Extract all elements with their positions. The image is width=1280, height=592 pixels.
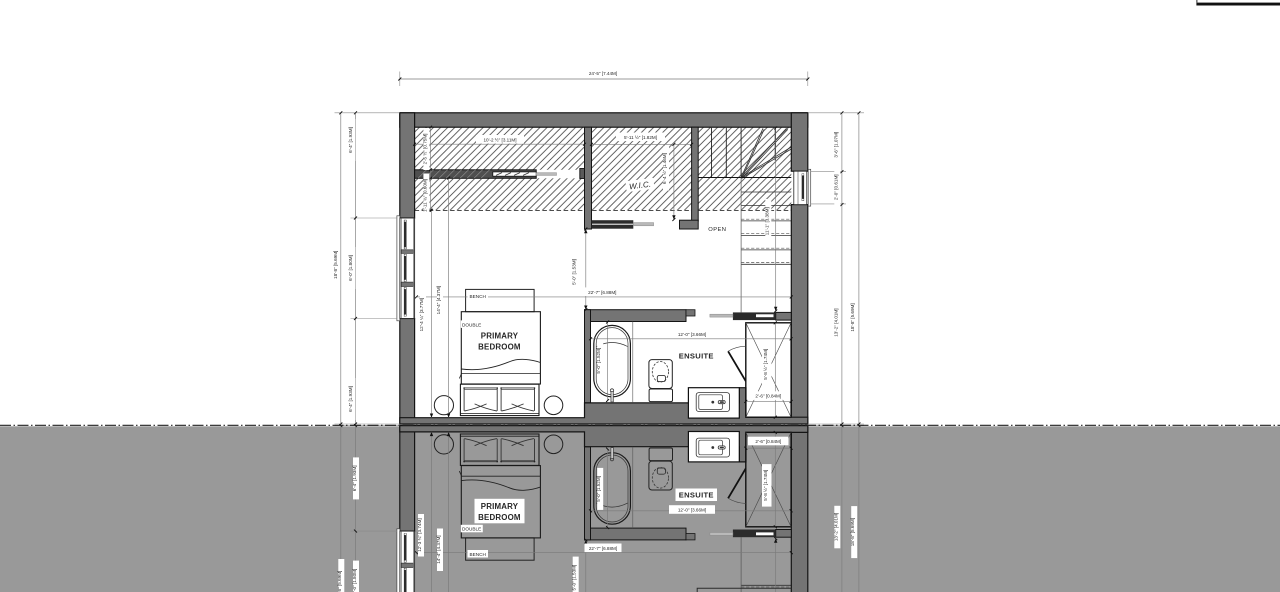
svg-text:2'-0" [0.61M]: 2'-0" [0.61M] bbox=[833, 174, 838, 200]
svg-text:12'-3 ¾" [3.74M]: 12'-3 ¾" [3.74M] bbox=[417, 518, 422, 551]
svg-text:2'-6" [0.84M]: 2'-6" [0.84M] bbox=[755, 439, 781, 444]
svg-text:BEDROOM: BEDROOM bbox=[478, 343, 521, 352]
svg-text:PRIMARY: PRIMARY bbox=[481, 332, 519, 341]
svg-text:1'-11 ¾" [0.60M]: 1'-11 ¾" [0.60M] bbox=[422, 179, 427, 212]
svg-text:6'-4" [1.93M]: 6'-4" [1.93M] bbox=[348, 127, 353, 153]
svg-text:6'-4" [1.93M]: 6'-4" [1.93M] bbox=[348, 386, 353, 412]
svg-text:BENCH: BENCH bbox=[469, 552, 485, 557]
svg-text:OPEN: OPEN bbox=[708, 227, 726, 233]
svg-text:18'-8" [5.69M]: 18'-8" [5.69M] bbox=[333, 251, 338, 279]
svg-text:5'-11 ½" [1.82M]: 5'-11 ½" [1.82M] bbox=[624, 134, 657, 140]
svg-text:11'-1" [3.38M]: 11'-1" [3.38M] bbox=[764, 207, 769, 235]
svg-text:PRIMARY: PRIMARY bbox=[481, 502, 519, 511]
svg-text:6'-0" [1.80M]: 6'-0" [1.80M] bbox=[348, 255, 353, 281]
svg-text:ENSUITE: ENSUITE bbox=[679, 491, 714, 500]
svg-text:6'-4 ½" [1.46M]: 6'-4 ½" [1.46M] bbox=[661, 153, 667, 184]
svg-text:5'-8 ½" [1.74M]: 5'-8 ½" [1.74M] bbox=[762, 349, 768, 380]
svg-text:6'-0" [1.80M]: 6'-0" [1.80M] bbox=[352, 569, 357, 592]
svg-text:22'-7" [6.88M]: 22'-7" [6.88M] bbox=[588, 290, 616, 295]
svg-text:18'-8" [5.69M]: 18'-8" [5.69M] bbox=[850, 303, 855, 331]
svg-text:5'-8 ½" [1.74M]: 5'-8 ½" [1.74M] bbox=[762, 470, 768, 501]
svg-text:14'-4" [4.37M]: 14'-4" [4.37M] bbox=[436, 535, 441, 563]
svg-text:BENCH: BENCH bbox=[469, 294, 485, 299]
svg-text:5'-0" [1.53M]: 5'-0" [1.53M] bbox=[572, 259, 577, 285]
svg-text:BEDROOM: BEDROOM bbox=[478, 513, 521, 522]
svg-text:5'-0" [1.52M]: 5'-0" [1.52M] bbox=[596, 476, 601, 502]
svg-text:ENSUITE: ENSUITE bbox=[679, 352, 714, 361]
svg-text:DOUBLE: DOUBLE bbox=[462, 322, 481, 327]
svg-text:12'-0" [3.66M]: 12'-0" [3.66M] bbox=[678, 508, 706, 513]
svg-text:13'-2" [4.01M]: 13'-2" [4.01M] bbox=[833, 308, 838, 336]
svg-text:3'-6" [1.07M]: 3'-6" [1.07M] bbox=[833, 132, 838, 158]
svg-text:2'-6" [0.84M]: 2'-6" [0.84M] bbox=[755, 394, 781, 399]
svg-text:12'-0" [3.66M]: 12'-0" [3.66M] bbox=[678, 332, 706, 337]
svg-text:6'-4" [1.93M]: 6'-4" [1.93M] bbox=[352, 466, 357, 492]
svg-text:22'-7" [6.88M]: 22'-7" [6.88M] bbox=[589, 546, 617, 551]
svg-text:5'-0" [1.52M]: 5'-0" [1.52M] bbox=[596, 348, 601, 374]
svg-text:14'-4" [4.37M]: 14'-4" [4.37M] bbox=[436, 286, 441, 314]
svg-text:13'-2" [4.01M]: 13'-2" [4.01M] bbox=[833, 513, 838, 541]
svg-text:18'-8" [5.69M]: 18'-8" [5.69M] bbox=[850, 518, 855, 546]
svg-text:18'-8" [5.69M]: 18'-8" [5.69M] bbox=[337, 571, 342, 592]
svg-text:12'-4 ¼" [3.77M]: 12'-4 ¼" [3.77M] bbox=[419, 298, 424, 331]
svg-text:2'-5 ½" [0.75M]: 2'-5 ½" [0.75M] bbox=[421, 134, 427, 165]
svg-text:10'-2 ½" [3.11M]: 10'-2 ½" [3.11M] bbox=[483, 136, 516, 142]
svg-text:24'-5" [7.44M]: 24'-5" [7.44M] bbox=[589, 71, 617, 76]
svg-text:DOUBLE: DOUBLE bbox=[462, 527, 481, 532]
svg-text:5'-0" [1.53M]: 5'-0" [1.53M] bbox=[572, 565, 577, 591]
